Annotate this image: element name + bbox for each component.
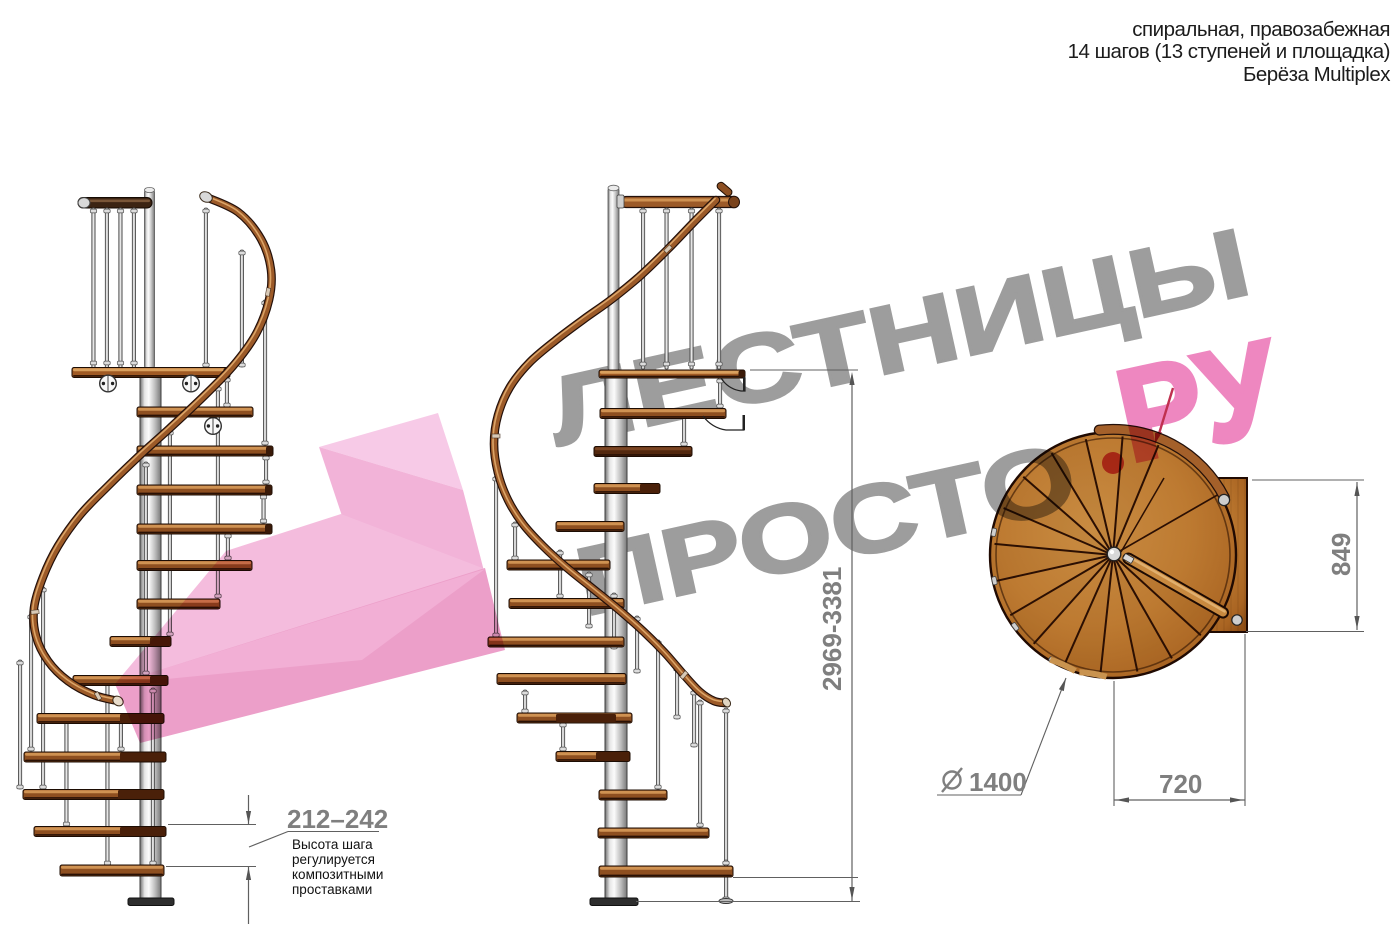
svg-text:Высота шага: Высота шага bbox=[292, 837, 373, 852]
svg-text:14 шагов (13 ступеней и площад: 14 шагов (13 ступеней и площадка) bbox=[1068, 40, 1390, 63]
svg-text:спиральная, правозабежная: спиральная, правозабежная bbox=[1132, 18, 1390, 41]
svg-text:2969-3381: 2969-3381 bbox=[817, 567, 847, 691]
svg-text:композитными: композитными bbox=[292, 867, 383, 882]
svg-text:212–242: 212–242 bbox=[287, 804, 388, 834]
svg-text:720: 720 bbox=[1159, 769, 1202, 799]
svg-text:Берёза Multiplex: Берёза Multiplex bbox=[1243, 63, 1391, 86]
svg-text:проставками: проставками bbox=[292, 882, 372, 897]
svg-text:регулируется: регулируется bbox=[292, 852, 375, 867]
svg-text:1400: 1400 bbox=[969, 767, 1027, 797]
svg-text:849: 849 bbox=[1326, 533, 1356, 576]
